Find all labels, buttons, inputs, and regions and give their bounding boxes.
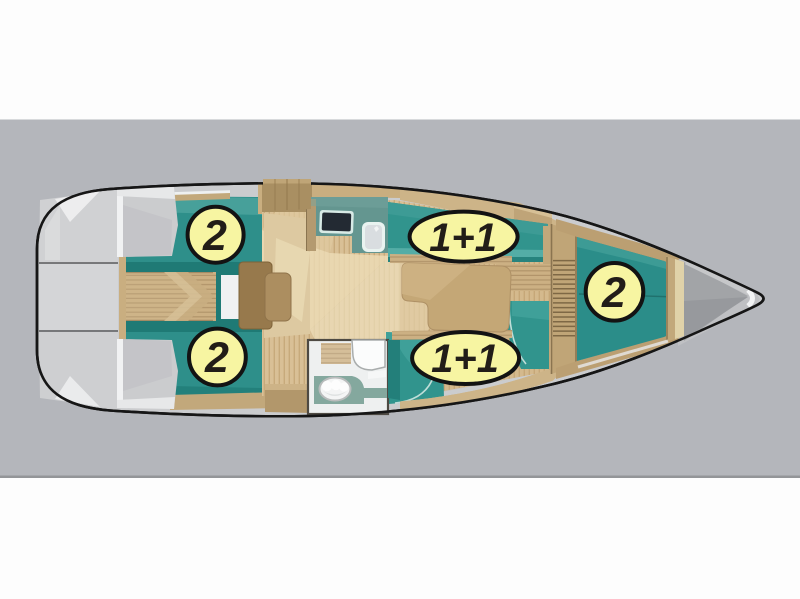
svg-text:1+1: 1+1: [429, 216, 497, 260]
svg-text:1+1: 1+1: [431, 337, 499, 381]
svg-text:2: 2: [204, 334, 229, 382]
svg-text:2: 2: [202, 212, 227, 260]
svg-text:2: 2: [601, 269, 626, 317]
